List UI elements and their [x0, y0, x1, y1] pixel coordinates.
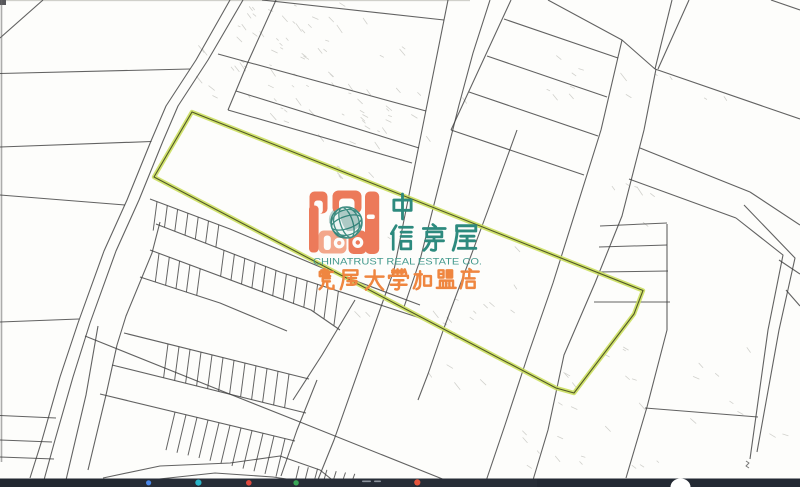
svg-text:CHINATRUST REAL ESTATE CO.: CHINATRUST REAL ESTATE CO. — [313, 256, 482, 267]
